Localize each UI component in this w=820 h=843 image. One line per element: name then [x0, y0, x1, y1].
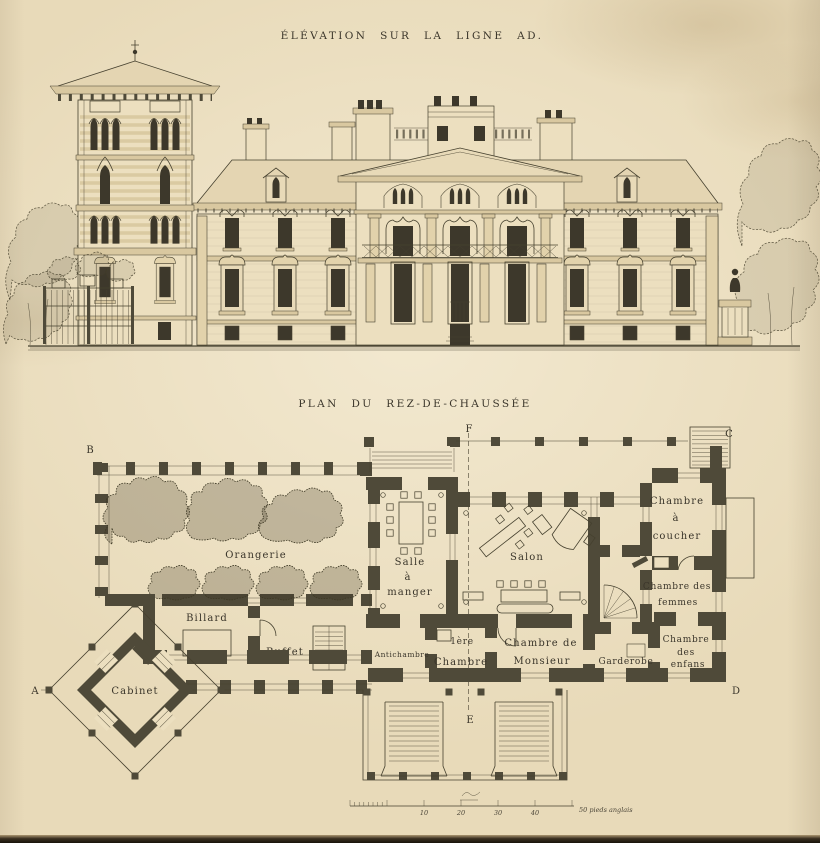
central-pavilion — [338, 148, 582, 345]
label-cabinet: Cabinet — [111, 686, 158, 697]
label-premiere-1: 1ère — [450, 636, 473, 647]
plan-title: PLAN DU REZ-DE-CHAUSSÉE — [298, 396, 531, 410]
marker-b: B — [86, 445, 93, 456]
engraving: ÉLÉVATION SUR LA LIGNE AD. — [0, 0, 820, 843]
label-coucher-3: coucher — [653, 531, 702, 542]
orangerie: Orangerie — [93, 462, 372, 606]
label-enfans-1: Chambre — [663, 635, 710, 645]
stair-east — [491, 702, 557, 776]
label-salle-1: Salle — [395, 557, 426, 568]
label-billard: Billard — [186, 613, 228, 624]
premiere-chambre: 1ère Chambre — [434, 628, 497, 668]
garden-trellis — [43, 252, 135, 344]
plan-drawing: PLAN DU REZ-DE-CHAUSSÉE A B C D E F — [30, 396, 754, 817]
ground-line — [28, 346, 800, 350]
marker-e: E — [466, 715, 473, 726]
label-orangerie: Orangerie — [225, 550, 287, 561]
scan-bottom-edge — [0, 835, 820, 843]
elevation-drawing: ÉLÉVATION SUR LA LIGNE AD. — [3, 28, 820, 350]
label-femmes-2: femmes — [658, 598, 698, 608]
label-coucher-2: à — [672, 513, 679, 524]
roof-attic-and-chimneys — [243, 96, 575, 162]
label-enfans-2: des — [677, 648, 695, 658]
label-premiere-2: Chambre — [434, 657, 488, 668]
label-salle-3: manger — [387, 587, 433, 598]
label-monsieur-1: Chambre de — [504, 638, 577, 649]
label-monsieur-2: Monsieur — [514, 656, 571, 667]
label-femmes-1: Chambre des — [643, 582, 711, 592]
engraving-page: ÉLÉVATION SUR LA LIGNE AD. — [0, 0, 820, 843]
spiral-stair — [600, 545, 640, 618]
stair-c — [690, 427, 730, 470]
label-coucher-1: Chambre — [650, 496, 704, 507]
marker-c: C — [725, 429, 733, 440]
stair-west — [381, 702, 447, 776]
scale-tick-20: 20 — [456, 809, 465, 817]
scale-tick-30: 30 — [494, 809, 502, 817]
marker-d: D — [732, 686, 740, 697]
marker-a: A — [30, 686, 39, 697]
scale-bar: 10 20 30 40 50 pieds anglais — [350, 792, 633, 817]
elevation-title: ÉLÉVATION SUR LA LIGNE AD. — [281, 28, 544, 42]
salle-a-manger: Salle à manger — [364, 437, 460, 628]
south-terrace — [363, 689, 567, 781]
marker-f: F — [466, 424, 473, 435]
label-enfans-3: enfans — [671, 660, 705, 670]
label-garderobe: Garderobe — [598, 657, 653, 667]
label-antichambre: Antichambre — [374, 650, 430, 659]
south-outer-wall — [368, 668, 583, 682]
scale-tick-40: 40 — [530, 809, 539, 817]
label-salon: Salon — [510, 552, 544, 563]
scale-tick-10: 10 — [420, 809, 428, 817]
scale-unit-label: 50 pieds anglais — [579, 806, 633, 814]
label-salle-2: à — [404, 572, 411, 583]
